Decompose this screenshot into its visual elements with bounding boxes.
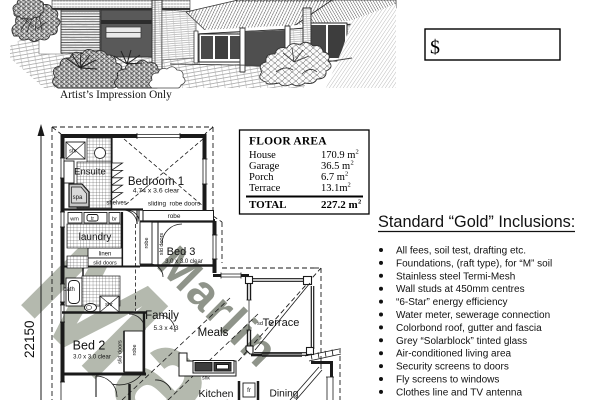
svg-text:Water meter, sewerage connecti: Water meter, sewerage connection [396,310,550,321]
svg-text:“6-Star” energy efficiency: “6-Star” energy efficiency [396,297,508,308]
svg-text:Terrace: Terrace [263,317,300,329]
svg-text:Clothes line and TV antenna: Clothes line and TV antenna [396,387,522,398]
svg-text:6.7 m: 6.7 m [321,172,345,183]
svg-text:Air-conditioned living area: Air-conditioned living area [396,349,512,360]
svg-text:All fees, soil test, drafting: All fees, soil test, drafting etc. [396,246,526,257]
svg-text:2: 2 [348,182,351,189]
svg-text:fr: fr [247,388,251,394]
svg-text:Bed 3: Bed 3 [167,246,196,258]
svg-text:Ensuite: Ensuite [74,167,106,178]
svg-text:4.74 x 3.6 clear: 4.74 x 3.6 clear [133,188,180,195]
svg-text:linen: linen [99,252,112,258]
svg-text:Security screens to doors: Security screens to doors [396,362,509,373]
svg-text:Family: Family [145,310,179,322]
svg-text:Grey “Solarblock” tinted glass: Grey “Solarblock” tinted glass [396,336,527,347]
svg-text:br: br [112,217,117,223]
svg-text:Terrace: Terrace [249,183,281,194]
svg-text:slid doors: slid doors [93,261,117,267]
svg-text:Standard “Gold” Inclusions:: Standard “Gold” Inclusions: [378,213,575,231]
svg-text:5.3 x 4.3: 5.3 x 4.3 [154,325,179,332]
svg-text:slid doors: slid doors [118,340,124,364]
svg-text:2: 2 [358,199,361,206]
svg-text:shr: shr [69,149,77,155]
svg-text:Colorbond roof, gutter and fas: Colorbond roof, gutter and fascia [396,323,542,334]
svg-text:22150: 22150 [22,320,37,358]
svg-text:13.1m: 13.1m [321,183,348,194]
svg-text:sliding robe doors: sliding robe doors [148,201,200,208]
svg-text:Bedroom 1: Bedroom 1 [128,176,184,188]
svg-text:snk: snk [202,376,210,382]
svg-text:Porch: Porch [249,172,274,183]
svg-text:Stainless steel Termi-Mesh: Stainless steel Termi-Mesh [396,271,515,282]
svg-text:2: 2 [356,149,359,156]
svg-text:Kitchen: Kitchen [198,388,233,400]
svg-text:Fly screens to windows: Fly screens to windows [396,375,499,386]
svg-text:Foundations, (raft type), for: Foundations, (raft type), for “M” soil [396,258,552,269]
svg-text:227.2 m: 227.2 m [321,199,358,211]
svg-text:wm: wm [69,217,79,223]
svg-text:Meals: Meals [198,327,229,339]
svg-text:2: 2 [351,160,354,167]
svg-text:sld doors: sld doors [159,233,165,256]
svg-text:Dining: Dining [270,389,299,400]
svg-text:Artist’s Impression Only: Artist’s Impression Only [60,89,172,101]
svg-text:3.0 x 3.0 clear: 3.0 x 3.0 clear [165,259,203,265]
svg-text:$: $ [430,37,440,59]
svg-text:FLOOR AREA: FLOOR AREA [249,136,327,148]
svg-text:Bed 2: Bed 2 [73,339,106,353]
svg-text:Wall studs at 450mm centres: Wall studs at 450mm centres [396,284,525,295]
svg-text:shelves: shelves [106,201,126,207]
svg-text:robe: robe [132,344,138,355]
svg-text:shr: shr [105,302,113,308]
svg-text:laundry: laundry [79,232,112,243]
svg-text:tr: tr [91,216,94,222]
svg-text:bath: bath [63,287,75,293]
svg-text:TOTAL: TOTAL [249,199,287,211]
svg-text:robe: robe [168,213,181,220]
svg-text:sd: sd [257,321,263,327]
svg-text:3.0 x 3.0 clear: 3.0 x 3.0 clear [73,355,111,361]
svg-text:Garage: Garage [249,161,280,172]
svg-text:robe: robe [144,237,150,248]
svg-text:2: 2 [345,171,348,178]
svg-text:House: House [249,150,276,161]
svg-text:spa: spa [73,195,83,201]
